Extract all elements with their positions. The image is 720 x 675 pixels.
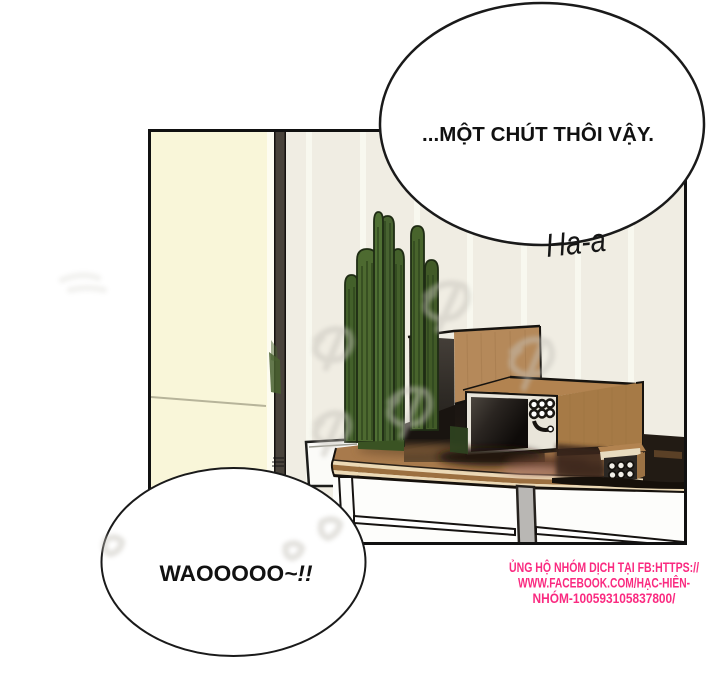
- svg-text:...MỘT CHÚT THÔI VẬY.: ...MỘT CHÚT THÔI VẬY.: [422, 122, 654, 146]
- svg-text:WWW.FACEBOOK.COM/HẠC-HIÊN-: WWW.FACEBOOK.COM/HẠC-HIÊN-: [518, 576, 690, 591]
- svg-text:NHÓM-100593105837800/: NHÓM-100593105837800/: [533, 591, 676, 606]
- svg-text:ỦNG HỘ NHÓM DỊCH TẠI FB:HTTPS:: ỦNG HỘ NHÓM DỊCH TẠI FB:HTTPS://: [509, 560, 699, 575]
- svg-text:Ha-a: Ha-a: [544, 221, 608, 264]
- svg-text:WAOOOOO~!!: WAOOOOO~!!: [160, 561, 313, 586]
